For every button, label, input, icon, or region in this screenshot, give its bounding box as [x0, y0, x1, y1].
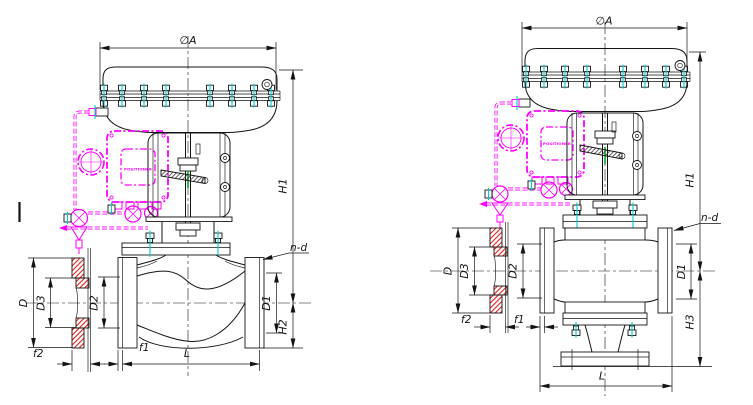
lifting-eye-icon: [262, 80, 272, 90]
vent-arrow-icon: [479, 201, 487, 207]
dim-label-h1: H1: [684, 172, 697, 187]
bottom-blind-flange: [561, 352, 649, 366]
dim-label-d2: D2: [507, 263, 520, 278]
packing-gland: [176, 223, 200, 230]
dim-label-f1: f1: [514, 314, 524, 326]
dim-label-f2: f2: [461, 314, 472, 326]
left-airset-regulator: [64, 210, 88, 255]
left-valve-view: POSITIONER: [17, 34, 312, 376]
right-counter-flange-section: [490, 222, 508, 333]
dim-label-l: L: [599, 370, 605, 383]
dim-label-d1: D1: [260, 295, 273, 310]
dim-label-d3: D3: [458, 263, 471, 278]
dim-label-d1: D1: [675, 264, 688, 279]
right-diaphragm-actuator: [512, 49, 690, 112]
dim-label-f1: f1: [139, 342, 149, 354]
technical-drawing-canvas: POSITIONER: [0, 0, 753, 405]
travel-pointer: [612, 122, 616, 132]
left-bonnet-flange: [122, 231, 230, 258]
right-positioner: POSITIONER: [498, 111, 584, 198]
dim-label-d2: D2: [88, 295, 101, 310]
packing-gland: [593, 201, 617, 208]
dim-label-f2: f2: [33, 348, 44, 360]
lifting-eye-icon: [675, 61, 685, 71]
dim-label-n-d: n-d: [290, 242, 307, 254]
left-yoke-assembly: [146, 133, 232, 243]
left-diaphragm-actuator: [89, 67, 280, 133]
valve-drawing-svg: POSITIONER: [0, 0, 753, 405]
dim-label-d: D: [442, 267, 455, 275]
right-airset-regulator: [485, 186, 508, 228]
left-valve-body: [118, 255, 264, 348]
travel-pointer: [196, 144, 200, 154]
dim-label-h3: H3: [684, 314, 697, 329]
dim-label-n-d: n-d: [701, 212, 718, 224]
feedback-lever: [580, 145, 622, 159]
left-positioner: POSITIONER: [78, 131, 168, 222]
dim-label-h2: H2: [277, 319, 290, 334]
vent-arrow-icon: [59, 225, 67, 231]
dim-label-h1: H1: [277, 178, 290, 193]
dim-label-dia-a: ∅A: [179, 34, 196, 47]
dim-label-l: L: [184, 347, 190, 360]
air-inlet-fitting: [512, 96, 530, 110]
dim-label-dia-a: ∅A: [595, 15, 612, 28]
dim-label-d: D: [17, 299, 30, 307]
air-inlet-fitting: [89, 105, 108, 119]
dim-label-d3: D3: [35, 295, 48, 310]
right-valve-view: POSITIONER: [430, 15, 721, 397]
